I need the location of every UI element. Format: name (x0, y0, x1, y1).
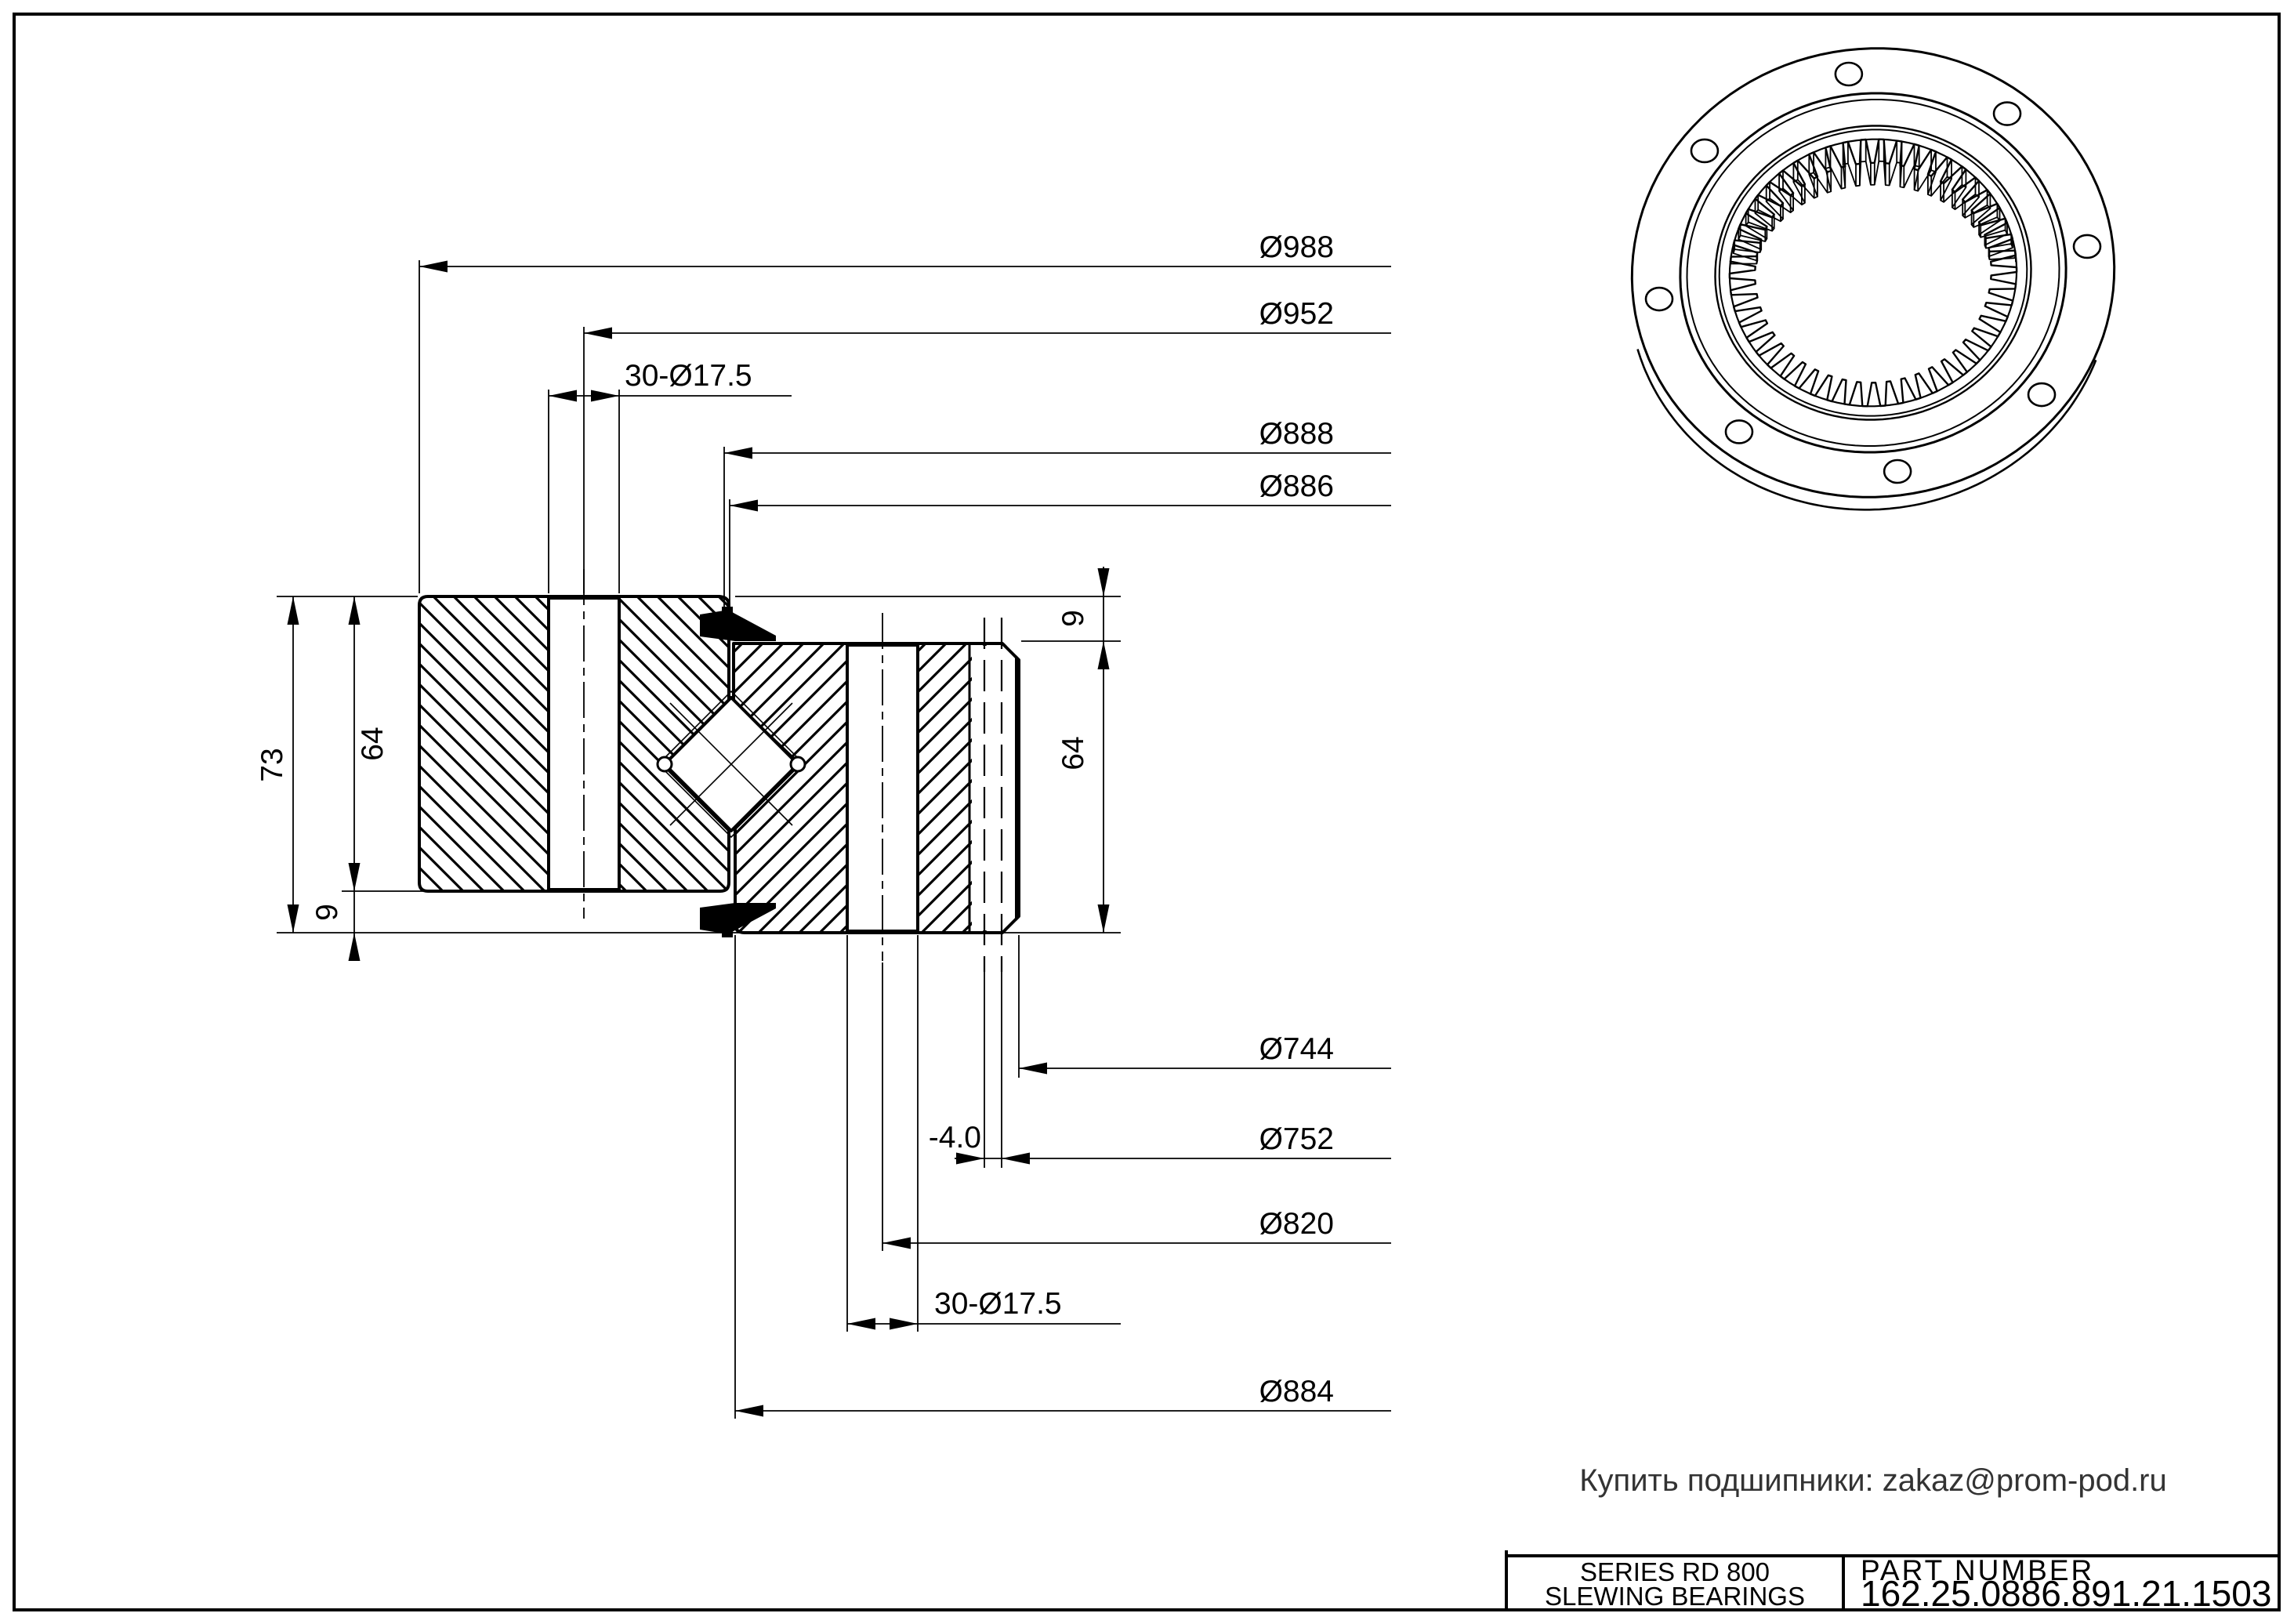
purchase-note: Купить подшипники: zakaz@prom-pod.ru (1579, 1463, 2167, 1498)
engineering-drawing: Ø988 Ø952 30-Ø17.5 Ø888 Ø886 Ø744 -4.0 Ø… (0, 0, 2294, 1624)
dim-offset: -4.0 (929, 1121, 981, 1155)
dim-h9-right: 9 (1056, 610, 1090, 627)
dim-d988: Ø988 (1259, 230, 1334, 264)
dim-d888: Ø888 (1259, 417, 1334, 451)
title-block-series-cell: SERIES RD 800 SLEWING BEARINGS (1545, 1557, 1805, 1611)
part-number-value: 162.25.0886.891.21.1503 (1861, 1573, 2271, 1614)
bottom-seal-tab (722, 929, 733, 937)
dim-d744: Ø744 (1259, 1032, 1334, 1066)
page-background (0, 0, 2294, 1624)
dim-d752: Ø752 (1259, 1122, 1334, 1156)
dim-h64-left: 64 (356, 727, 390, 760)
drawing-page: Ø988 Ø952 30-Ø17.5 Ø888 Ø886 Ø744 -4.0 Ø… (0, 0, 2294, 1624)
dim-h9-left: 9 (310, 904, 344, 921)
roller-contact-left (658, 757, 672, 771)
dim-d886: Ø886 (1259, 469, 1334, 503)
roller (658, 691, 805, 837)
roller-contact-right (791, 757, 805, 771)
dim-d820: Ø820 (1259, 1207, 1334, 1241)
series-line2: SLEWING BEARINGS (1545, 1582, 1805, 1611)
top-seal-tab (722, 607, 733, 615)
dim-h73: 73 (255, 748, 289, 781)
dim-h64-right: 64 (1056, 736, 1090, 770)
dim-d884: Ø884 (1259, 1375, 1334, 1408)
dim-holes-top: 30-Ø17.5 (625, 359, 752, 393)
dim-d952: Ø952 (1259, 297, 1334, 331)
dim-holes-bottom: 30-Ø17.5 (934, 1287, 1062, 1321)
gear-tooth-zone (972, 646, 1017, 930)
